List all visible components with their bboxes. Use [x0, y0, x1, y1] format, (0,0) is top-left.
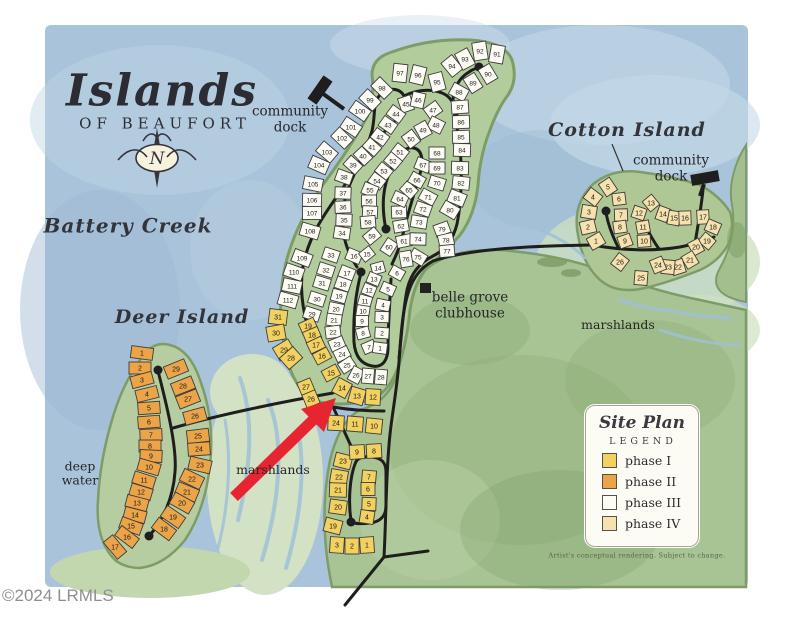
svg-text:80: 80: [446, 207, 454, 214]
svg-text:73: 73: [415, 219, 423, 226]
svg-text:37: 37: [339, 190, 347, 197]
svg-text:14: 14: [659, 211, 667, 218]
lot: 106: [302, 193, 321, 207]
svg-text:24: 24: [332, 420, 340, 427]
lot: 7: [614, 209, 627, 221]
svg-text:2: 2: [380, 330, 384, 337]
compass-n-label: N: [149, 149, 166, 169]
svg-text:94: 94: [448, 63, 456, 70]
svg-text:14: 14: [131, 512, 139, 519]
svg-text:11: 11: [639, 224, 646, 231]
svg-text:13: 13: [353, 393, 361, 400]
lot: 77: [439, 244, 455, 257]
svg-text:24: 24: [195, 446, 203, 453]
svg-text:29: 29: [172, 366, 180, 373]
svg-text:9: 9: [623, 238, 627, 245]
lot: 86: [452, 115, 469, 129]
svg-text:2: 2: [586, 224, 590, 231]
svg-text:105: 105: [308, 181, 319, 188]
lot: 10: [637, 235, 651, 248]
svg-text:4: 4: [591, 194, 595, 201]
lot: 5: [362, 497, 376, 510]
svg-text:16: 16: [350, 253, 358, 260]
lot: 11: [636, 220, 651, 234]
svg-text:13: 13: [647, 200, 655, 207]
legend-item-phase-2: phase II: [602, 474, 698, 489]
lot: 1: [359, 537, 374, 554]
svg-text:55: 55: [366, 187, 374, 194]
svg-text:19: 19: [703, 238, 711, 245]
svg-text:17: 17: [343, 270, 351, 277]
lot: 24: [188, 442, 211, 456]
svg-text:17: 17: [312, 342, 320, 349]
svg-text:107: 107: [307, 210, 318, 217]
svg-text:85: 85: [457, 134, 465, 141]
svg-text:4: 4: [365, 514, 369, 521]
svg-text:47: 47: [429, 107, 437, 114]
svg-text:19: 19: [335, 293, 343, 300]
svg-text:23: 23: [196, 462, 204, 469]
svg-text:3: 3: [587, 209, 591, 216]
svg-text:5: 5: [367, 501, 371, 508]
svg-text:74: 74: [414, 236, 422, 243]
lot: 36: [335, 201, 351, 214]
lot: 8: [613, 220, 628, 234]
lot: 74: [410, 233, 426, 245]
svg-text:22: 22: [329, 329, 337, 336]
svg-text:20: 20: [332, 306, 340, 313]
lot: 3: [329, 537, 344, 554]
svg-text:62: 62: [397, 223, 405, 230]
svg-text:3: 3: [140, 377, 144, 384]
legend: Site Plan LEGEND phase I phase II phase …: [585, 405, 699, 547]
svg-text:5: 5: [147, 405, 151, 412]
lot: 27: [361, 368, 374, 384]
svg-text:10: 10: [359, 308, 367, 315]
svg-text:96: 96: [414, 72, 422, 79]
svg-text:35: 35: [340, 217, 348, 224]
svg-text:16: 16: [681, 215, 689, 222]
svg-text:7: 7: [367, 474, 371, 481]
svg-text:61: 61: [400, 238, 408, 245]
svg-text:48: 48: [432, 122, 440, 129]
svg-text:21: 21: [183, 489, 191, 496]
svg-text:98: 98: [378, 85, 386, 92]
svg-text:9: 9: [355, 449, 359, 456]
svg-text:28: 28: [179, 383, 187, 390]
svg-text:26: 26: [307, 396, 315, 403]
legend-item-phase-1: phase I: [602, 453, 698, 468]
svg-text:81: 81: [453, 195, 461, 202]
svg-text:16: 16: [318, 353, 326, 360]
lot: 1: [130, 346, 153, 361]
lot: 4: [375, 298, 391, 312]
lot: 4: [359, 510, 375, 525]
svg-text:63: 63: [395, 209, 403, 216]
svg-text:104: 104: [314, 162, 325, 169]
svg-text:10: 10: [640, 238, 648, 245]
svg-text:12: 12: [635, 210, 643, 217]
svg-text:112: 112: [283, 297, 294, 304]
svg-text:90: 90: [484, 71, 492, 78]
lot: 85: [452, 130, 469, 144]
svg-text:22: 22: [674, 264, 682, 271]
svg-text:11: 11: [362, 298, 369, 305]
svg-text:69: 69: [433, 165, 441, 172]
lot: 11: [346, 416, 363, 432]
svg-text:10: 10: [145, 464, 153, 471]
lot: 84: [453, 143, 470, 157]
lot: 68: [429, 147, 445, 159]
svg-text:75: 75: [414, 254, 422, 261]
svg-text:6: 6: [366, 486, 370, 493]
lot: 34: [333, 226, 351, 240]
svg-text:8: 8: [148, 443, 152, 450]
svg-text:65: 65: [405, 187, 413, 194]
svg-text:44: 44: [392, 111, 400, 118]
svg-text:15: 15: [670, 215, 678, 222]
svg-text:100: 100: [355, 108, 366, 115]
lot: 37: [335, 187, 351, 200]
svg-text:6: 6: [617, 196, 621, 203]
svg-text:46: 46: [414, 97, 422, 104]
svg-text:91: 91: [493, 51, 501, 58]
svg-text:22: 22: [335, 474, 343, 481]
svg-text:5: 5: [386, 286, 390, 293]
legend-subtitle: LEGEND: [588, 436, 698, 447]
svg-text:20: 20: [334, 504, 342, 511]
svg-text:4: 4: [145, 391, 149, 398]
svg-text:43: 43: [384, 122, 392, 129]
svg-text:17: 17: [699, 214, 707, 221]
svg-text:13: 13: [133, 500, 141, 507]
svg-text:88: 88: [455, 89, 463, 96]
lot: 62: [393, 219, 410, 233]
svg-text:8: 8: [361, 330, 365, 337]
svg-text:7: 7: [367, 344, 371, 351]
svg-text:21: 21: [330, 317, 338, 324]
lot: 1: [372, 342, 387, 355]
svg-text:11: 11: [140, 477, 147, 484]
svg-text:28: 28: [377, 374, 385, 381]
svg-text:66: 66: [413, 177, 421, 184]
svg-text:5: 5: [606, 184, 610, 191]
legend-item-phase-3: phase III: [602, 495, 698, 510]
lot: 3: [375, 311, 389, 322]
lot: 97: [392, 63, 408, 82]
watermark: ©2024 LRMLS: [2, 586, 114, 606]
svg-text:59: 59: [368, 233, 376, 240]
phase-3-swatch: [602, 495, 617, 510]
lot: 24: [328, 415, 345, 431]
svg-text:6: 6: [395, 270, 399, 277]
svg-text:109: 109: [297, 255, 308, 262]
lot: 56: [362, 195, 377, 207]
svg-text:7: 7: [149, 432, 153, 439]
svg-text:3: 3: [380, 314, 384, 321]
lot: 8: [366, 444, 382, 459]
svg-text:97: 97: [396, 70, 404, 77]
svg-text:87: 87: [456, 104, 464, 111]
lot: 82: [452, 176, 470, 191]
svg-text:1: 1: [594, 238, 598, 245]
svg-text:20: 20: [692, 244, 700, 251]
lot: 9: [349, 445, 365, 460]
svg-text:93: 93: [461, 56, 469, 63]
svg-text:34: 34: [338, 230, 346, 237]
svg-text:12: 12: [369, 394, 377, 401]
lot: 21: [329, 483, 346, 498]
svg-text:84: 84: [458, 147, 466, 154]
svg-text:102: 102: [337, 135, 348, 142]
svg-text:38: 38: [340, 174, 348, 181]
svg-text:18: 18: [160, 526, 168, 533]
svg-text:64: 64: [396, 196, 404, 203]
svg-text:54: 54: [373, 178, 381, 185]
lot: 7: [140, 429, 162, 442]
lot: 87: [451, 100, 469, 114]
svg-text:70: 70: [433, 180, 441, 187]
svg-text:79: 79: [438, 226, 446, 233]
lot: 25: [186, 428, 209, 444]
svg-text:18: 18: [339, 281, 347, 288]
lot: 46: [410, 91, 426, 108]
lot: 91: [489, 44, 506, 64]
lot: 28: [374, 369, 387, 385]
svg-text:22: 22: [188, 476, 196, 483]
lot: 2: [579, 219, 597, 235]
svg-text:72: 72: [419, 206, 427, 213]
svg-text:27: 27: [184, 396, 192, 403]
lot: 12: [365, 389, 381, 406]
svg-text:31: 31: [318, 280, 326, 287]
svg-text:15: 15: [363, 251, 371, 258]
svg-text:25: 25: [637, 275, 645, 282]
svg-text:27: 27: [302, 384, 310, 391]
svg-text:58: 58: [364, 219, 372, 226]
svg-text:83: 83: [456, 165, 464, 172]
svg-text:106: 106: [307, 197, 318, 204]
svg-text:31: 31: [274, 314, 282, 321]
lot: 83: [451, 161, 468, 175]
clubhouse-icon: [420, 283, 431, 293]
lot: 25: [634, 271, 648, 286]
lot: 69: [429, 162, 445, 174]
lot: 10: [365, 418, 382, 435]
svg-text:17: 17: [111, 544, 119, 551]
svg-text:110: 110: [289, 269, 300, 276]
svg-text:41: 41: [368, 144, 376, 151]
lot: 6: [612, 192, 626, 206]
lot: 76: [399, 250, 413, 268]
svg-text:49: 49: [419, 127, 427, 134]
svg-text:86: 86: [457, 119, 465, 126]
svg-text:95: 95: [433, 79, 441, 86]
svg-text:51: 51: [396, 149, 404, 156]
svg-text:76: 76: [402, 256, 410, 263]
svg-text:8: 8: [372, 448, 376, 455]
svg-text:33: 33: [327, 252, 335, 259]
svg-text:108: 108: [305, 228, 316, 235]
lot: 6: [138, 415, 161, 429]
svg-text:27: 27: [364, 373, 372, 380]
site-plan-map: { "map": { "logo": {"main": "Islands", "…: [0, 0, 800, 618]
svg-text:16: 16: [123, 534, 131, 541]
lot: 2: [345, 538, 359, 554]
phase-2-swatch: [602, 474, 617, 489]
svg-text:26: 26: [352, 372, 360, 379]
svg-text:28: 28: [287, 355, 295, 362]
lot: 107: [303, 207, 322, 220]
svg-text:24: 24: [654, 262, 662, 269]
svg-text:11: 11: [351, 421, 358, 428]
svg-text:18: 18: [709, 224, 717, 231]
svg-text:26: 26: [616, 259, 624, 266]
svg-text:10: 10: [370, 423, 378, 430]
svg-text:18: 18: [308, 332, 316, 339]
svg-text:13: 13: [370, 276, 378, 283]
svg-text:25: 25: [194, 433, 202, 440]
svg-text:3: 3: [335, 542, 339, 549]
svg-text:1: 1: [365, 542, 369, 549]
svg-text:60: 60: [385, 244, 393, 251]
legend-title: Site Plan: [586, 413, 698, 433]
svg-text:50: 50: [407, 136, 415, 143]
svg-text:42: 42: [376, 134, 384, 141]
svg-text:77: 77: [443, 248, 451, 255]
svg-text:21: 21: [686, 257, 694, 264]
svg-text:12: 12: [365, 287, 373, 294]
lot: 35: [336, 214, 352, 227]
svg-text:99: 99: [366, 97, 374, 104]
svg-text:14: 14: [338, 385, 346, 392]
lot: 31: [268, 308, 288, 325]
svg-text:4: 4: [381, 302, 385, 309]
svg-text:52: 52: [389, 158, 397, 165]
lot: 30: [266, 324, 286, 342]
svg-text:89: 89: [469, 80, 477, 87]
lot: 2: [375, 327, 390, 339]
svg-text:36: 36: [339, 204, 347, 211]
svg-text:7: 7: [619, 212, 623, 219]
svg-text:12: 12: [137, 489, 145, 496]
svg-text:2: 2: [138, 365, 142, 372]
svg-text:24: 24: [338, 351, 346, 358]
svg-text:23: 23: [339, 458, 347, 465]
lot: 6: [361, 483, 375, 496]
lot: 5: [138, 401, 161, 415]
svg-text:15: 15: [127, 523, 135, 530]
svg-text:9: 9: [149, 453, 153, 460]
svg-text:82: 82: [457, 180, 465, 187]
svg-text:25: 25: [343, 362, 351, 369]
svg-text:103: 103: [322, 149, 333, 156]
lot: 9: [356, 316, 369, 327]
svg-text:30: 30: [272, 330, 280, 337]
lot: 16: [679, 211, 691, 225]
svg-text:23: 23: [333, 341, 341, 348]
lot: 3: [581, 204, 598, 219]
svg-text:26: 26: [191, 413, 199, 420]
svg-text:20: 20: [178, 500, 186, 507]
lot: 7: [361, 470, 376, 484]
svg-text:92: 92: [476, 48, 484, 55]
svg-text:67: 67: [419, 162, 427, 169]
lot: 20: [329, 499, 348, 515]
svg-text:53: 53: [380, 168, 388, 175]
svg-text:101: 101: [346, 124, 357, 131]
svg-text:8: 8: [618, 224, 622, 231]
legend-item-phase-4: phase IV: [602, 516, 698, 531]
svg-text:15: 15: [327, 370, 335, 377]
svg-text:32: 32: [322, 267, 330, 274]
svg-text:40: 40: [359, 153, 367, 160]
svg-text:9: 9: [360, 318, 364, 325]
svg-text:71: 71: [424, 194, 432, 201]
svg-text:45: 45: [402, 101, 410, 108]
svg-text:39: 39: [349, 162, 357, 169]
svg-text:19: 19: [329, 523, 337, 530]
svg-text:1: 1: [378, 345, 382, 352]
svg-text:6: 6: [147, 419, 151, 426]
lot: 73: [410, 215, 428, 229]
svg-text:111: 111: [287, 283, 297, 290]
svg-text:30: 30: [313, 296, 321, 303]
svg-text:21: 21: [334, 487, 342, 494]
svg-text:2: 2: [350, 543, 354, 550]
svg-text:14: 14: [374, 265, 382, 272]
phase-4-swatch: [602, 516, 617, 531]
svg-text:78: 78: [442, 237, 450, 244]
lot: 92: [472, 41, 489, 61]
svg-text:1: 1: [140, 350, 144, 357]
svg-text:19: 19: [169, 514, 177, 521]
svg-text:56: 56: [365, 198, 373, 205]
svg-text:68: 68: [433, 150, 441, 157]
phase-1-swatch: [602, 453, 617, 468]
